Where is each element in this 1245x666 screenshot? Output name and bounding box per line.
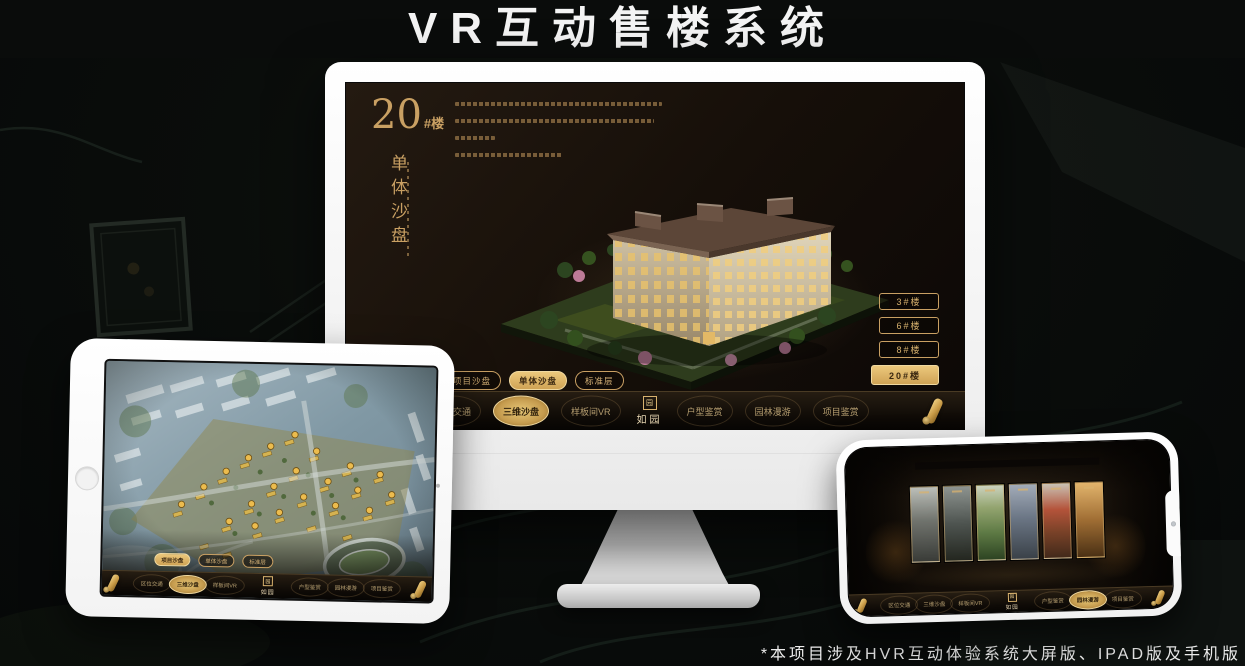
brand-logo[interactable]: 园 如园 xyxy=(261,576,275,596)
nav-item-label: 户型鉴赏 xyxy=(687,407,723,417)
nav-item-label: 园林漫游 xyxy=(335,586,357,592)
nav-item-label: 园林漫游 xyxy=(755,407,791,417)
sandbox-tab[interactable]: 项目沙盘 xyxy=(154,553,190,567)
floor-button[interactable]: 8#楼 xyxy=(879,341,939,358)
nav-item-label: 区位交通 xyxy=(888,602,910,609)
vertical-caption-ticks xyxy=(407,162,409,258)
nav-item-label: 样板间VR xyxy=(213,583,237,590)
nav-item-label: 户型鉴赏 xyxy=(299,585,321,591)
floor-button-label: 3#楼 xyxy=(896,295,921,308)
scene-panel[interactable] xyxy=(943,485,973,562)
intro-text-line xyxy=(455,102,662,106)
scroll-icon[interactable] xyxy=(856,598,867,614)
scene-panel-caption xyxy=(1051,488,1061,490)
floor-button[interactable]: 3#楼 xyxy=(879,293,939,310)
phone-device: 区位交通 三维沙盘 样板间VR 园 如园 xyxy=(835,431,1182,624)
floor-button-label: 6#楼 xyxy=(896,319,921,332)
sandbox-tab-label: 单体沙盘 xyxy=(519,375,557,387)
scene-panel-caption xyxy=(919,491,929,493)
scene-panel[interactable] xyxy=(1075,481,1105,558)
scene-panel[interactable] xyxy=(1009,483,1039,560)
scene-panel-caption xyxy=(985,489,995,491)
intro-text-line xyxy=(455,119,654,123)
nav-item-label: 三维沙盘 xyxy=(177,582,199,588)
floor-button[interactable]: 20#楼 xyxy=(871,365,939,385)
nav-item[interactable]: 区位交通 xyxy=(886,599,912,610)
brand-logo[interactable]: 园 如园 xyxy=(637,396,663,426)
floor-reflection xyxy=(888,559,1133,592)
nav-item[interactable]: 项目鉴赏 xyxy=(1110,593,1136,604)
unit-heading: 20#楼 xyxy=(371,94,444,136)
unit-suffix: #楼 xyxy=(424,116,444,131)
nav-item[interactable]: 户型鉴赏 xyxy=(683,403,727,420)
scroll-icon[interactable] xyxy=(106,573,120,592)
promo-canvas: VR互动售楼系统 20#楼 单体沙盘 xyxy=(0,0,1245,666)
unit-number: 20 xyxy=(371,92,422,138)
monitor-stand-base xyxy=(557,584,760,608)
nav-item[interactable]: 三维沙盘 xyxy=(921,598,947,609)
nav-item[interactable]: 项目鉴赏 xyxy=(369,583,395,594)
phone-screen: 区位交通 三维沙盘 样板间VR 园 如园 xyxy=(845,440,1174,617)
scene-panel-caption xyxy=(1084,487,1094,489)
floor-button-label: 8#楼 xyxy=(896,343,921,356)
page-title: VR互动售楼系统 xyxy=(0,0,1245,58)
footnote-text: *本项目涉及HVR互动体验系统大屏版、IPAD版及手机版 xyxy=(761,640,1241,664)
nav-item-label: 项目鉴赏 xyxy=(371,586,393,592)
floor-button[interactable]: 6#楼 xyxy=(879,317,939,334)
nav-item[interactable]: 户型鉴赏 xyxy=(1040,595,1066,606)
nav-item-label: 三维沙盘 xyxy=(503,407,539,417)
sandbox-tabs: 项目沙盘 单体沙盘 标准层 xyxy=(443,371,624,390)
building-block xyxy=(587,198,835,366)
nav-item-label: 户型鉴赏 xyxy=(1042,598,1064,605)
sandbox-tab-label: 项目沙盘 xyxy=(161,555,183,563)
sandbox-tab[interactable]: 单体沙盘 xyxy=(198,554,234,568)
nav-item-label: 项目鉴赏 xyxy=(823,407,859,417)
sandbox-tab[interactable]: 单体沙盘 xyxy=(509,371,567,390)
nav-item-label: 项目鉴赏 xyxy=(1112,596,1134,603)
brand-logo-text: 如园 xyxy=(1006,602,1019,610)
nav-group-left: 区位交通 三维沙盘 样板间VR xyxy=(431,403,615,420)
nav-item-label: 样板间VR xyxy=(571,407,611,417)
brand-logo-text: 如园 xyxy=(261,587,275,596)
seal-icon: 园 xyxy=(263,576,273,586)
nav-item-label: 样板间VR xyxy=(958,600,982,607)
floor-button-group: 3#楼 6#楼 8#楼 20#楼 xyxy=(871,293,939,385)
nav-item[interactable]: 园林漫游 xyxy=(751,403,795,420)
scroll-icon[interactable] xyxy=(413,580,427,599)
sandbox-tab[interactable]: 标准层 xyxy=(575,371,624,390)
sandbox-tab-label: 项目沙盘 xyxy=(453,375,491,387)
nav-item[interactable]: 户型鉴赏 xyxy=(297,582,323,593)
scene-panel[interactable] xyxy=(910,486,940,563)
nav-group-right: 户型鉴赏 园林漫游 项目鉴赏 xyxy=(1040,593,1136,606)
tablet-camera-dot xyxy=(436,484,440,488)
nav-item[interactable]: 园林漫游 xyxy=(1075,594,1101,605)
nav-item[interactable]: 样板间VR xyxy=(211,580,239,591)
sandbox-tab-label: 标准层 xyxy=(585,375,614,387)
scroll-icon[interactable] xyxy=(925,397,944,424)
sandbox-tab[interactable]: 标准层 xyxy=(242,555,273,569)
nav-group-left: 区位交通 三维沙盘 样板间VR xyxy=(886,597,984,610)
scene-panel-caption xyxy=(952,490,962,492)
sandbox-tabs: 项目沙盘 单体沙盘 标准层 xyxy=(154,553,273,568)
building-model-illustration[interactable] xyxy=(495,152,895,390)
nav-item[interactable]: 三维沙盘 xyxy=(499,403,543,420)
scene-gallery xyxy=(910,481,1105,562)
nav-item-label: 三维沙盘 xyxy=(923,601,945,608)
nav-group-right: 户型鉴赏 园林漫游 项目鉴赏 xyxy=(683,403,863,420)
nav-item-label: 园林漫游 xyxy=(1077,597,1099,604)
tablet-device: 项目沙盘 单体沙盘 标准层 区位交通 xyxy=(65,338,455,624)
phone-camera-icon xyxy=(1170,521,1175,526)
background-plaque xyxy=(91,219,190,335)
seal-icon: 园 xyxy=(643,396,657,410)
nav-item[interactable]: 区位交通 xyxy=(139,578,165,589)
scroll-icon[interactable] xyxy=(1154,589,1165,605)
nav-group-left: 区位交通 三维沙盘 样板间VR xyxy=(139,578,239,590)
nav-item-label: 区位交通 xyxy=(141,582,163,588)
sandbox-tab-label: 标准层 xyxy=(249,557,266,565)
scene-panel[interactable] xyxy=(1042,482,1072,559)
tablet-home-button[interactable] xyxy=(75,466,99,490)
background-light-band xyxy=(1000,62,1245,262)
phone-notch xyxy=(1165,490,1181,556)
nav-item[interactable]: 样板间VR xyxy=(956,597,984,608)
intro-text-line xyxy=(455,136,495,140)
brand-logo[interactable]: 园 如园 xyxy=(1005,592,1019,610)
nav-item[interactable]: 园林漫游 xyxy=(333,583,359,594)
tablet-screen: 项目沙盘 单体沙盘 标准层 区位交通 xyxy=(102,361,437,602)
nav-group-right: 户型鉴赏 园林漫游 项目鉴赏 xyxy=(297,582,395,594)
nav-item[interactable]: 项目鉴赏 xyxy=(819,403,863,420)
scene-panel[interactable] xyxy=(976,484,1006,561)
brand-logo-text: 如园 xyxy=(637,411,663,426)
floor-button-label: 20#楼 xyxy=(889,369,921,382)
nav-item[interactable]: 三维沙盘 xyxy=(175,579,201,590)
sandbox-tab-label: 单体沙盘 xyxy=(205,556,227,564)
nav-item[interactable]: 样板间VR xyxy=(567,403,615,420)
seal-icon: 园 xyxy=(1007,592,1016,601)
scene-panel-caption xyxy=(1018,488,1028,490)
